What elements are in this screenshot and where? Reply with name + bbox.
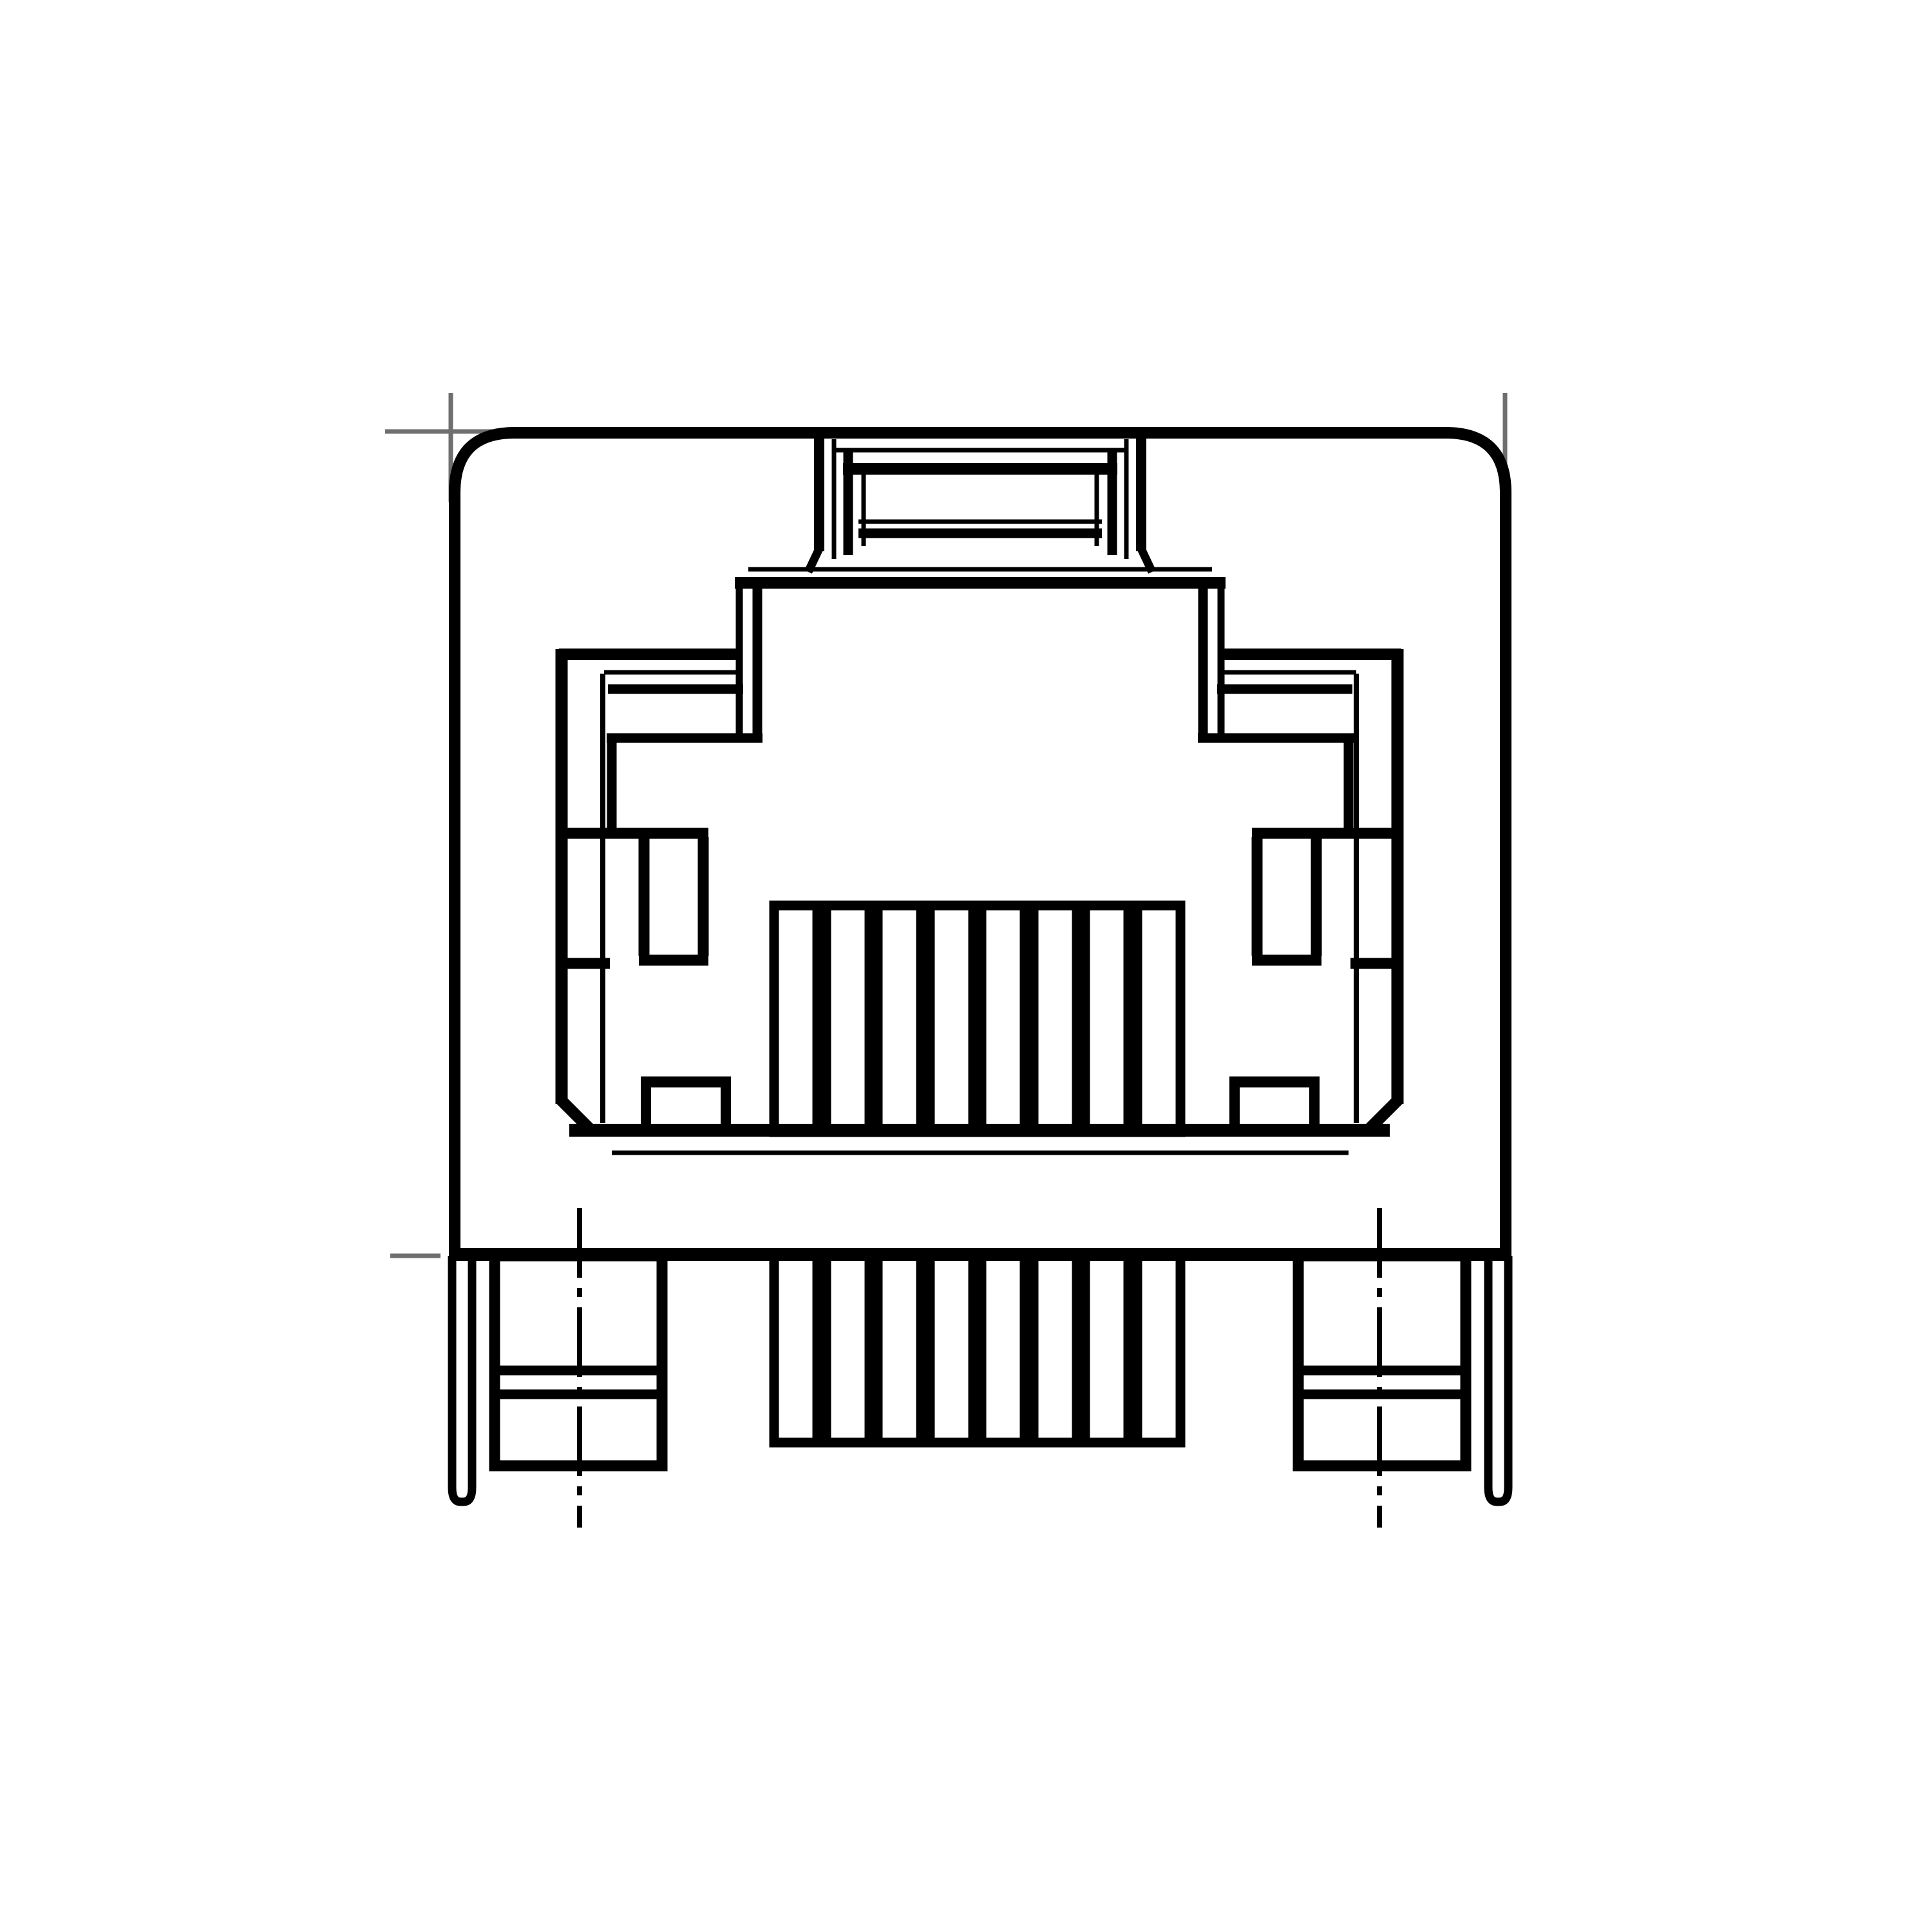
solder-tail-6 [1034, 1256, 1077, 1443]
contact-pin-5 [981, 905, 1025, 1132]
solder-tail-5 [981, 1256, 1025, 1443]
contact-pin-8 [1137, 905, 1180, 1132]
solder-tail-7 [1085, 1256, 1128, 1443]
board-lock-left [452, 1256, 472, 1502]
contact-pin-4 [930, 905, 973, 1132]
contact-pin-7 [1085, 905, 1128, 1132]
contact-pin-3 [878, 905, 921, 1132]
board-lock-right [1488, 1256, 1508, 1502]
contact-pin-2 [826, 905, 869, 1132]
solder-tail-8 [1137, 1256, 1180, 1443]
solder-tail-4 [930, 1256, 973, 1443]
rj45-jack-front-view-drawing [0, 0, 1932, 1932]
contact-pin-1 [774, 905, 817, 1132]
solder-tail-1 [774, 1256, 817, 1443]
solder-tail-3 [878, 1256, 921, 1443]
contact-pin-6 [1034, 905, 1077, 1132]
solder-tail-2 [826, 1256, 869, 1443]
drawing-sheet [0, 0, 1932, 1932]
